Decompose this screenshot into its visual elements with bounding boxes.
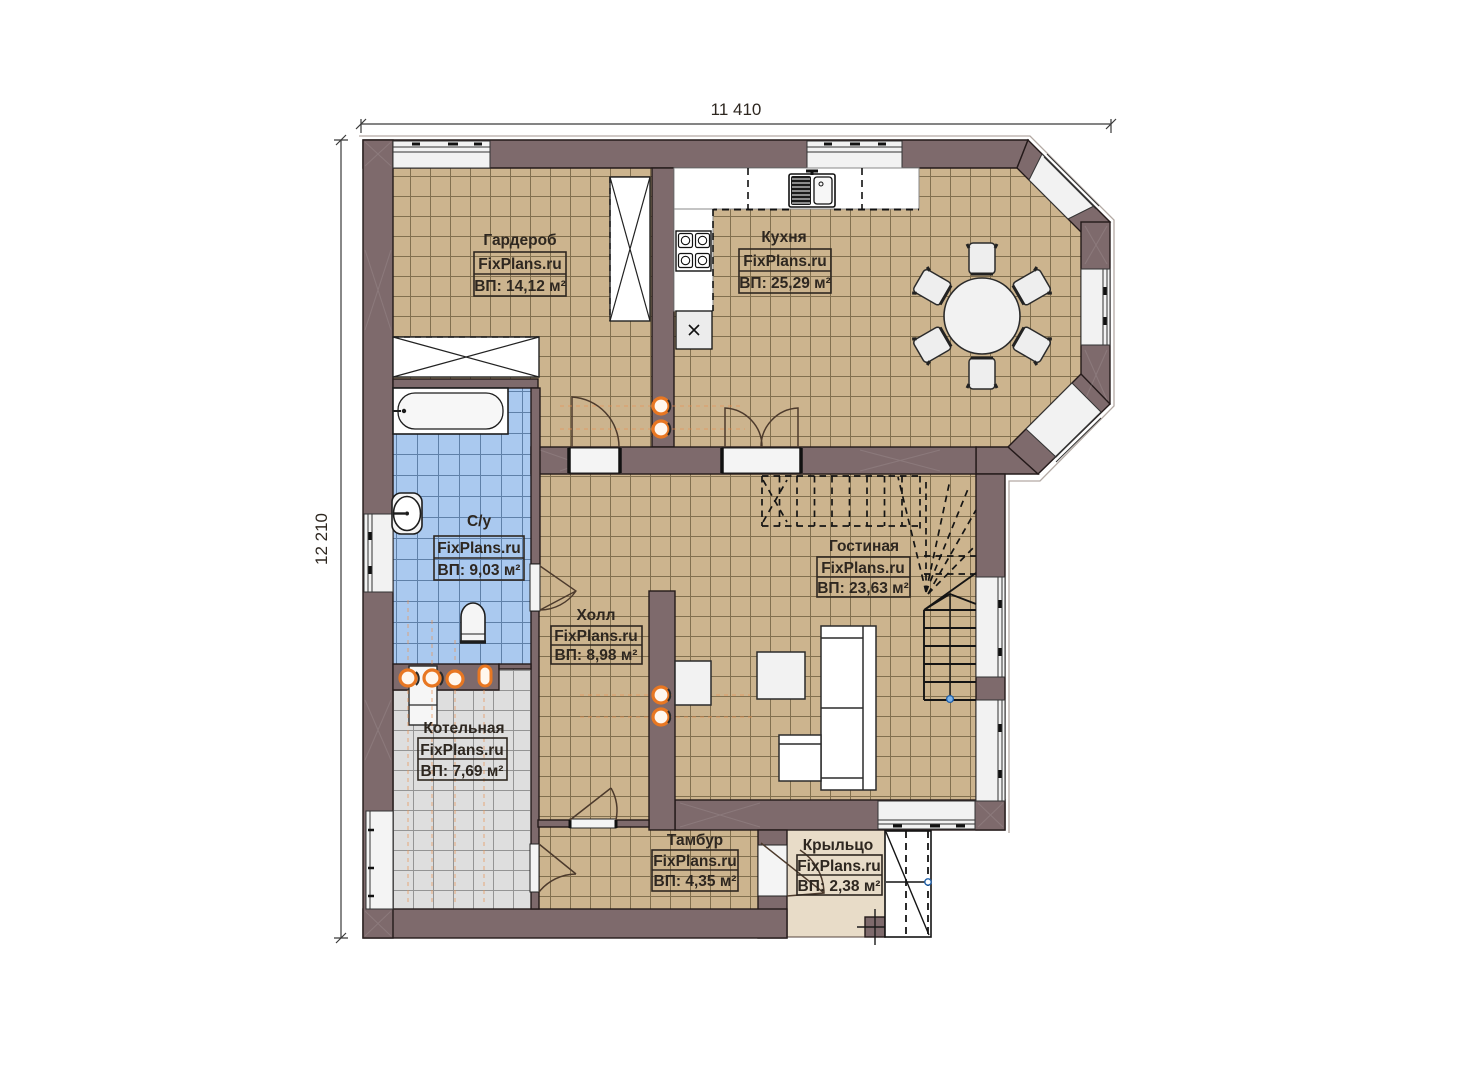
svg-text:FixPlans.ru: FixPlans.ru bbox=[653, 853, 737, 870]
svg-text:ВП: 25,29 м²: ВП: 25,29 м² bbox=[739, 275, 831, 292]
svg-text:С/у: С/у bbox=[467, 513, 492, 530]
svg-text:Тамбур: Тамбур bbox=[667, 832, 723, 849]
svg-text:ВП: 14,12 м²: ВП: 14,12 м² bbox=[474, 278, 566, 295]
svg-text:Гардероб: Гардероб bbox=[483, 232, 556, 249]
svg-text:ВП: 4,35 м²: ВП: 4,35 м² bbox=[654, 873, 737, 890]
svg-text:ВП: 9,03 м²: ВП: 9,03 м² bbox=[438, 562, 521, 579]
svg-text:FixPlans.ru: FixPlans.ru bbox=[420, 742, 504, 759]
svg-text:FixPlans.ru: FixPlans.ru bbox=[821, 560, 905, 577]
svg-text:FixPlans.ru: FixPlans.ru bbox=[437, 540, 521, 557]
svg-text:FixPlans.ru: FixPlans.ru bbox=[797, 858, 881, 875]
svg-text:12 210: 12 210 bbox=[312, 513, 331, 565]
svg-text:FixPlans.ru: FixPlans.ru bbox=[478, 256, 562, 273]
svg-text:Гостиная: Гостиная bbox=[829, 538, 899, 555]
svg-text:ВП: 7,69 м²: ВП: 7,69 м² bbox=[421, 763, 504, 780]
svg-text:ВП: 23,63 м²: ВП: 23,63 м² bbox=[817, 580, 909, 597]
svg-text:FixPlans.ru: FixPlans.ru bbox=[743, 253, 827, 270]
svg-text:Котельная: Котельная bbox=[423, 720, 504, 737]
svg-text:Кухня: Кухня bbox=[761, 229, 806, 246]
svg-text:ВП: 8,98 м²: ВП: 8,98 м² bbox=[555, 647, 638, 664]
svg-text:FixPlans.ru: FixPlans.ru bbox=[554, 628, 638, 645]
svg-text:Холл: Холл bbox=[577, 607, 616, 624]
svg-text:ВП: 2,38 м²: ВП: 2,38 м² bbox=[798, 878, 881, 895]
svg-text:Крыльцо: Крыльцо bbox=[803, 837, 874, 854]
svg-text:11 410: 11 410 bbox=[711, 100, 762, 119]
